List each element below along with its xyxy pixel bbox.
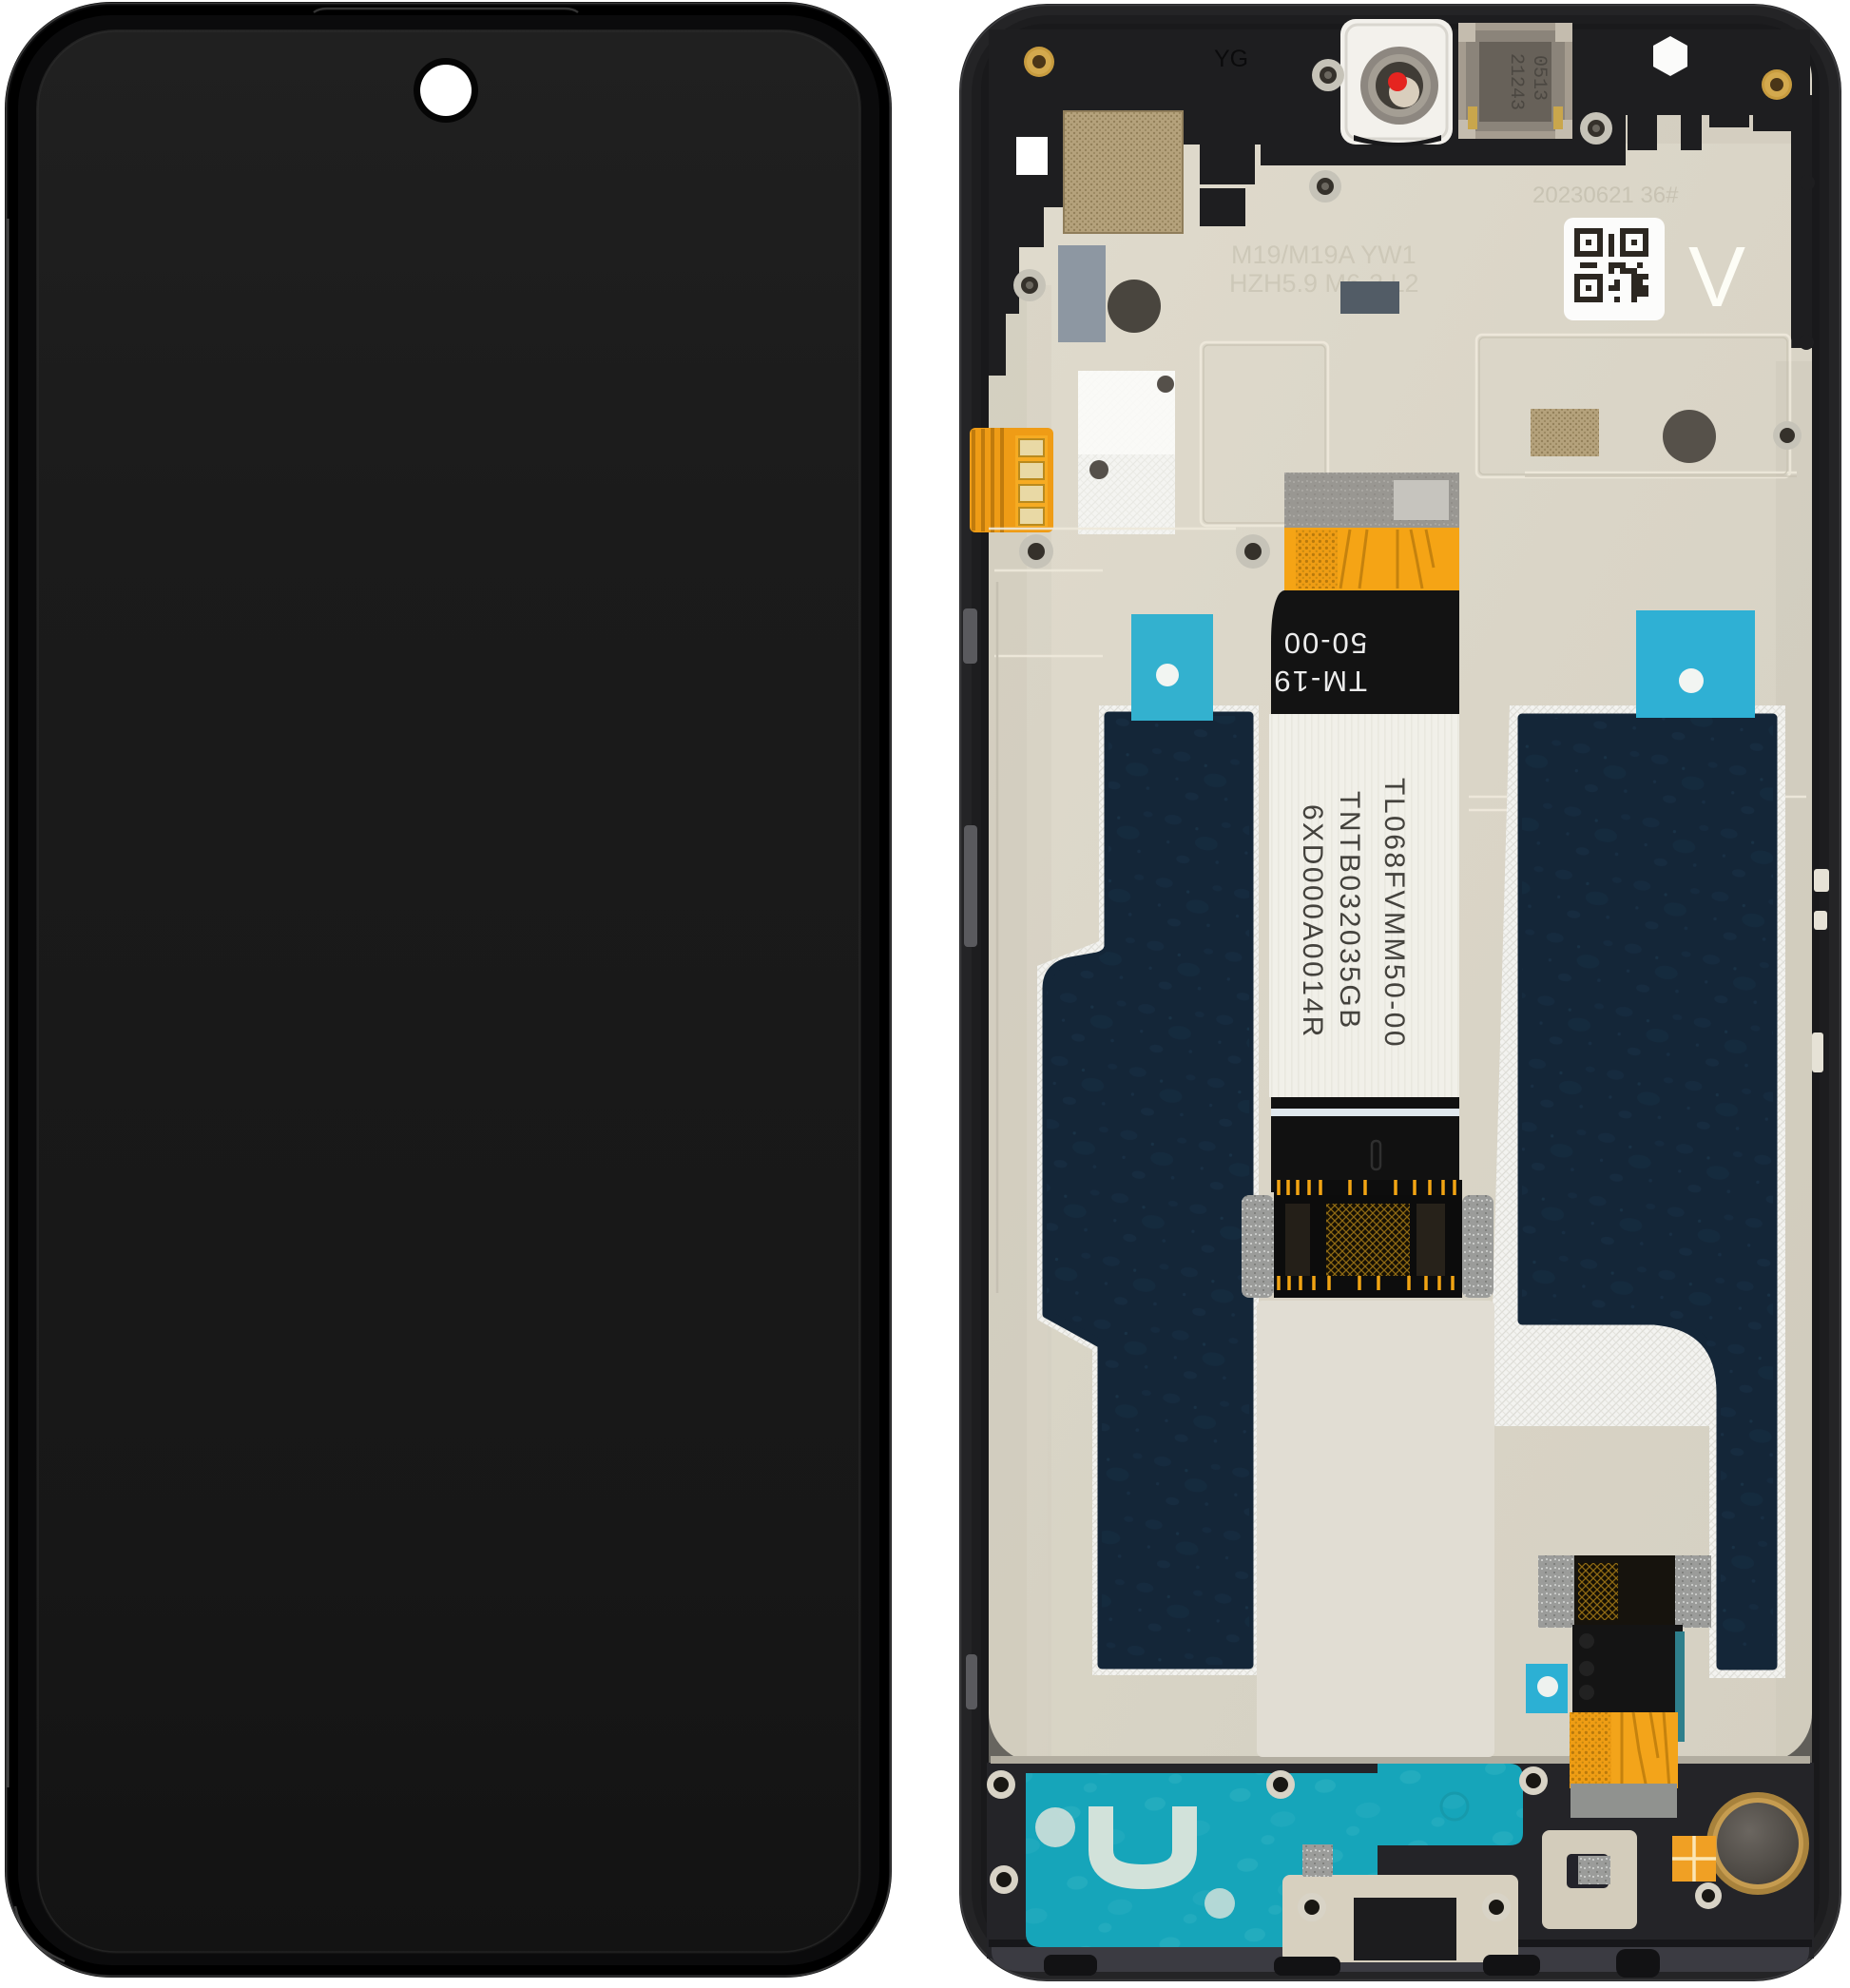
svg-text:TL068FVMM50-00: TL068FVMM50-00 [1378, 778, 1410, 1049]
svg-text:20230621 36#: 20230621 36# [1532, 183, 1679, 208]
svg-text:TM-19: TM-19 [1272, 665, 1367, 698]
svg-text:6XD000A0014R: 6XD000A0014R [1297, 804, 1328, 1039]
svg-text:50-00: 50-00 [1282, 627, 1367, 660]
svg-text:M19/M19A YW1: M19/M19A YW1 [1231, 241, 1416, 269]
svg-text:V: V [1688, 230, 1745, 325]
svg-text:0513: 0513 [1528, 55, 1550, 101]
svg-text:YG: YG [1214, 46, 1248, 72]
svg-text:TNTB032035GB: TNTB032035GB [1334, 791, 1365, 1031]
svg-text:21243: 21243 [1505, 53, 1527, 110]
